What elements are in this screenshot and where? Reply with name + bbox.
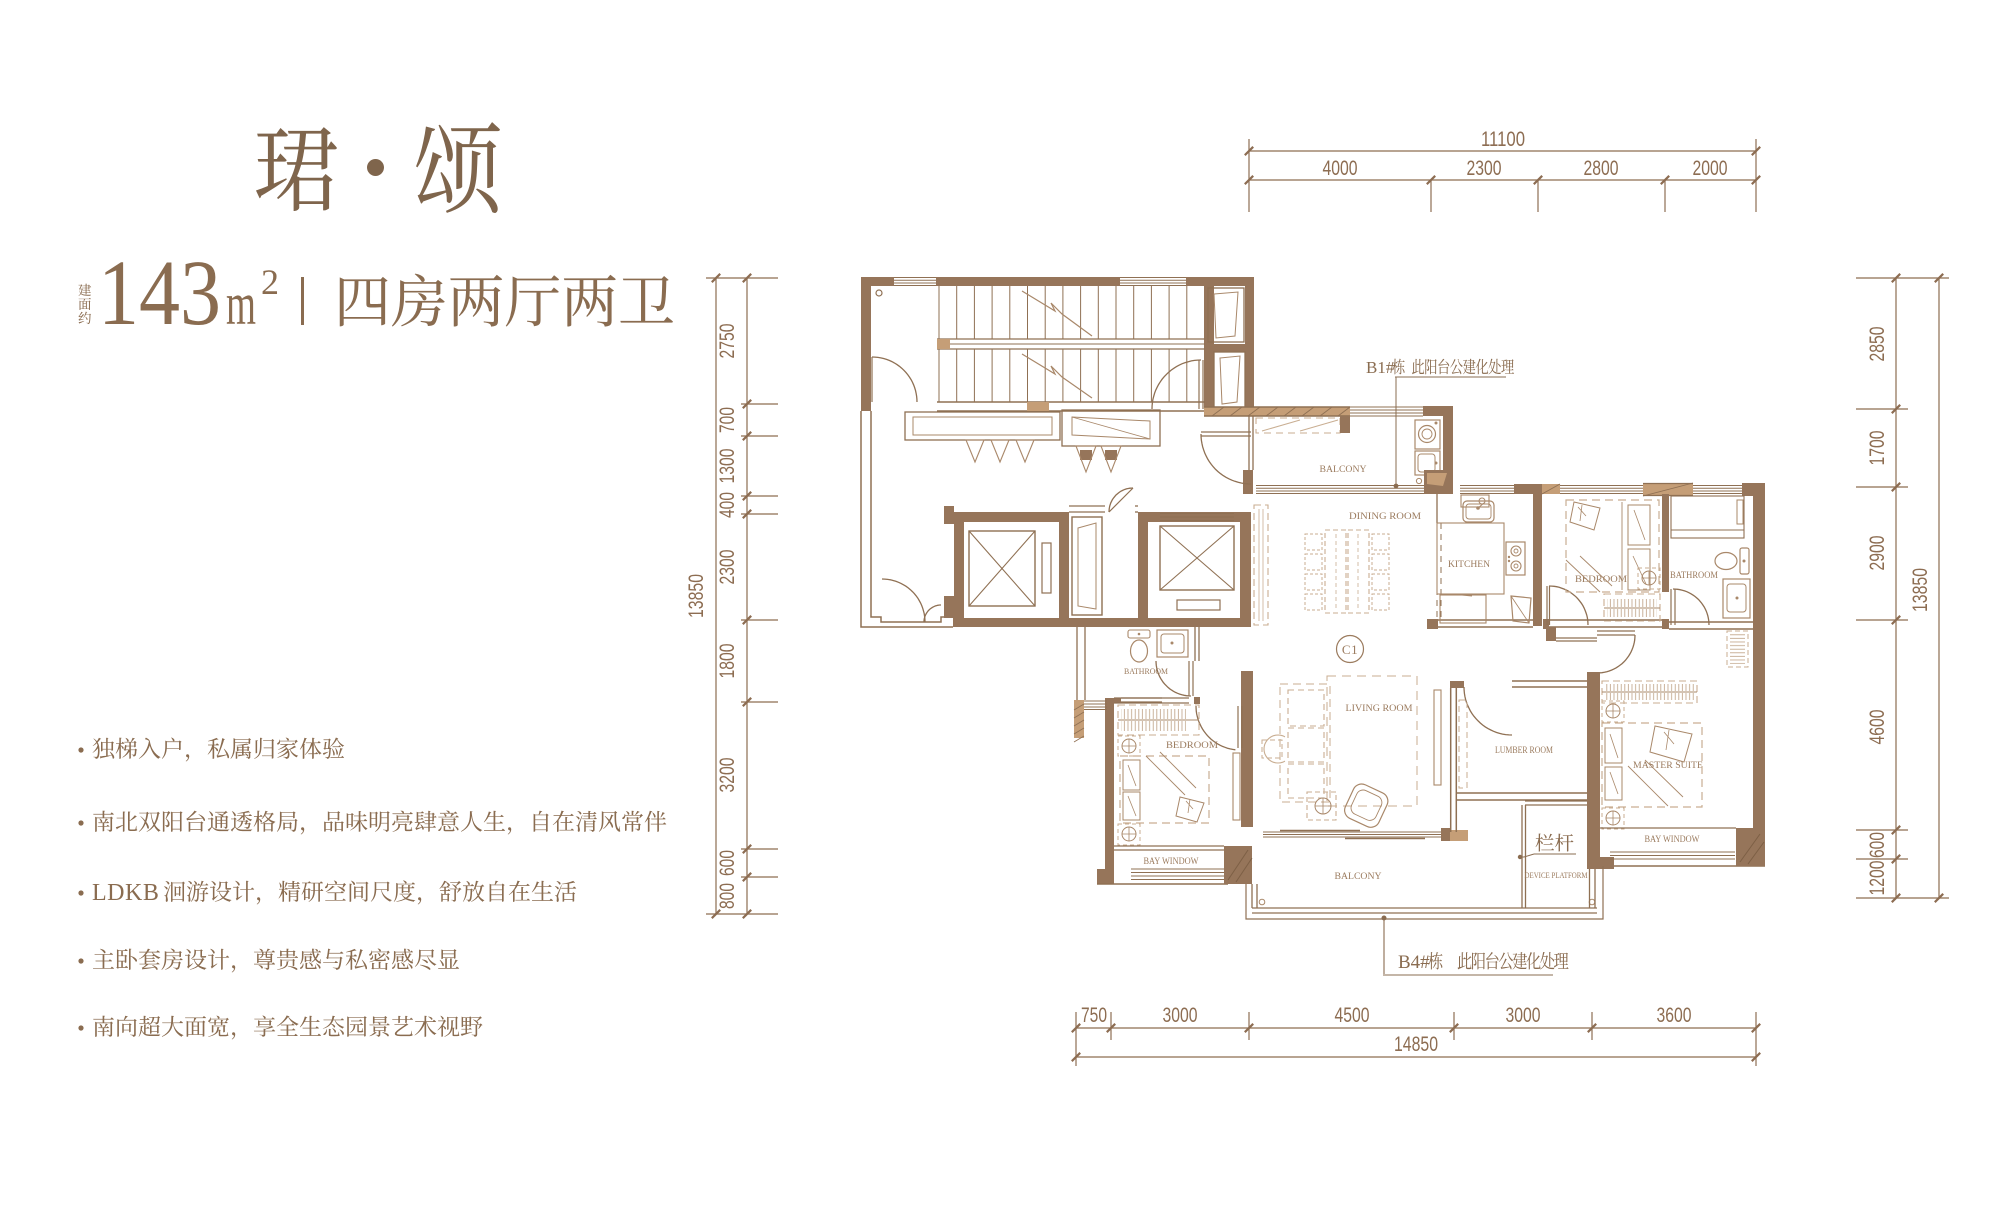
svg-text:C1: C1 <box>1342 642 1358 657</box>
svg-text:4600: 4600 <box>1866 710 1889 745</box>
svg-text:2850: 2850 <box>1866 327 1889 362</box>
svg-text:800: 800 <box>716 883 739 909</box>
svg-text:2300: 2300 <box>716 550 739 585</box>
svg-text:1200: 1200 <box>1866 861 1889 896</box>
svg-text:11100: 11100 <box>1481 128 1525 151</box>
svg-text:DEVICE PLATFORM: DEVICE PLATFORM <box>1525 870 1588 880</box>
svg-text:BALCONY: BALCONY <box>1320 465 1367 475</box>
svg-text:2: 2 <box>261 262 279 302</box>
svg-text:DINING ROOM: DINING ROOM <box>1349 512 1422 522</box>
svg-text:700: 700 <box>716 407 739 433</box>
svg-text:2900: 2900 <box>1866 536 1889 571</box>
svg-text:BEDROOM: BEDROOM <box>1166 741 1219 751</box>
svg-text:B4#: B4# <box>1398 952 1430 973</box>
svg-text:3600: 3600 <box>1657 1004 1692 1027</box>
svg-text:1300: 1300 <box>716 449 739 484</box>
svg-text:3000: 3000 <box>1163 1004 1198 1027</box>
svg-text:13850: 13850 <box>1909 568 1932 612</box>
svg-text:MASTER SUITE: MASTER SUITE <box>1633 761 1703 771</box>
svg-text:2800: 2800 <box>1584 157 1619 180</box>
svg-text:2000: 2000 <box>1693 157 1728 180</box>
svg-text:m: m <box>226 271 256 337</box>
svg-text:750: 750 <box>1081 1004 1107 1027</box>
svg-text:LUMBER ROOM: LUMBER ROOM <box>1495 746 1553 756</box>
svg-text:1800: 1800 <box>716 644 739 679</box>
svg-text:13850: 13850 <box>685 574 708 618</box>
svg-text:BALCONY: BALCONY <box>1335 872 1382 882</box>
svg-text:LIVING ROOM: LIVING ROOM <box>1346 704 1414 714</box>
svg-text:143: 143 <box>98 242 221 345</box>
svg-text:14850: 14850 <box>1394 1033 1438 1056</box>
svg-text:3000: 3000 <box>1506 1004 1541 1027</box>
svg-text:600: 600 <box>1866 832 1889 858</box>
svg-text:4500: 4500 <box>1335 1004 1370 1027</box>
svg-text:3200: 3200 <box>716 758 739 793</box>
svg-text:600: 600 <box>716 850 739 876</box>
svg-text:2750: 2750 <box>716 324 739 359</box>
svg-text:BATHROOM: BATHROOM <box>1670 570 1718 580</box>
svg-text:BAY WINDOW: BAY WINDOW <box>1645 835 1700 845</box>
svg-text:BAY WINDOW: BAY WINDOW <box>1144 857 1199 867</box>
svg-text:KITCHEN: KITCHEN <box>1448 560 1490 570</box>
svg-text:LDKB: LDKB <box>92 880 159 906</box>
svg-text:1700: 1700 <box>1866 431 1889 466</box>
svg-text:400: 400 <box>716 492 739 518</box>
svg-text:B1#: B1# <box>1366 358 1395 377</box>
svg-text:4000: 4000 <box>1323 157 1358 180</box>
svg-text:BATHROOM: BATHROOM <box>1124 666 1168 676</box>
svg-text:2300: 2300 <box>1467 157 1502 180</box>
